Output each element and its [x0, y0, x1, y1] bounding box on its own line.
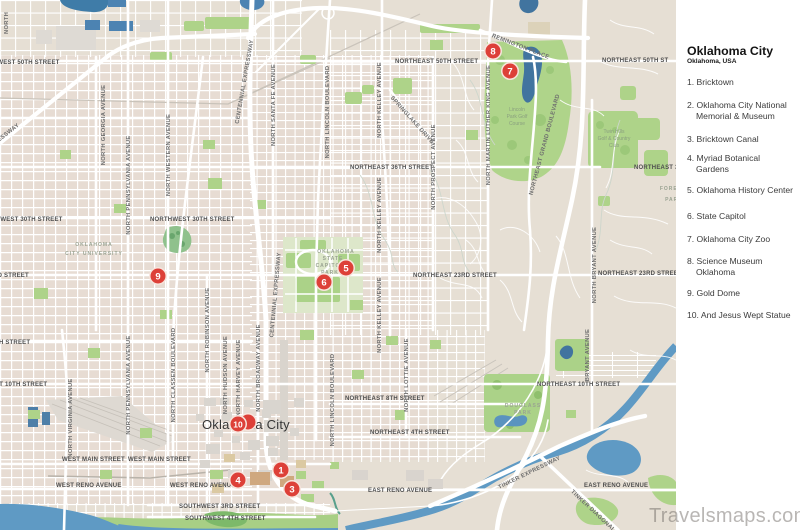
svg-text:PARK: PARK [514, 410, 532, 416]
svg-text:3: 3 [289, 485, 294, 496]
svg-text:NORTHEAST 10TH STREET: NORTHEAST 10TH STREET [537, 382, 620, 388]
svg-text:OKLAHOMA: OKLAHOMA [75, 242, 112, 248]
svg-text:Park Golf: Park Golf [507, 114, 528, 120]
svg-text:FOREST: FOREST [660, 186, 676, 192]
svg-text:OKLAHOMA: OKLAHOMA [317, 249, 354, 255]
svg-text:NORTHEAST 23RD STREET: NORTHEAST 23RD STREET [413, 273, 497, 279]
svg-text:NORTHEAST 36TH STREET: NORTHEAST 36TH STREET [634, 165, 676, 171]
svg-text:SOUTHWEST 4TH STREET: SOUTHWEST 4TH STREET [185, 516, 266, 522]
svg-text:8: 8 [490, 47, 495, 58]
svg-text:12TH STREET: 12TH STREET [0, 340, 30, 346]
svg-text:WEST RENO AVENUE: WEST RENO AVENUE [56, 483, 122, 489]
svg-text:NORTH PENNSYLVANIA AVENUE: NORTH PENNSYLVANIA AVENUE [126, 335, 132, 434]
svg-text:WEST MAIN STREET: WEST MAIN STREET [128, 457, 191, 463]
svg-text:NORTH LINCOLN BOULEVARD: NORTH LINCOLN BOULEVARD [325, 66, 331, 159]
svg-text:NORTH SANTA FE AVENUE: NORTH SANTA FE AVENUE [271, 64, 277, 146]
svg-text:PARK: PARK [665, 197, 676, 203]
svg-text:DOUGLASS: DOUGLASS [505, 403, 541, 409]
svg-text:NORTHEAST 50TH STREET: NORTHEAST 50TH STREET [395, 59, 478, 65]
svg-text:NORTHWEST 30TH STREET: NORTHWEST 30TH STREET [150, 217, 235, 223]
svg-text:Twin Hills: Twin Hills [603, 129, 625, 135]
svg-text:EAST RENO AVENUE: EAST RENO AVENUE [584, 483, 648, 489]
svg-text:NORTH GEORGIA AVENUE: NORTH GEORGIA AVENUE [101, 85, 107, 166]
svg-text:9: 9 [155, 272, 160, 283]
svg-text:NORTH VIRGINIA AVENUE: NORTH VIRGINIA AVENUE [68, 378, 74, 457]
svg-text:SOUTHWEST 3RD STREET: SOUTHWEST 3RD STREET [179, 504, 260, 510]
svg-text:CITY UNIVERSITY: CITY UNIVERSITY [65, 251, 123, 257]
svg-text:NORTHEAST 36TH STREET: NORTHEAST 36TH STREET [350, 165, 433, 171]
svg-text:NORTH CLASSEN BOULEVARD: NORTH CLASSEN BOULEVARD [171, 328, 177, 423]
svg-text:1: 1 [278, 466, 284, 477]
svg-text:NORTH BROADWAY AVENUE: NORTH BROADWAY AVENUE [256, 324, 262, 411]
svg-text:NORTH PENNSYLVANIA AVENUE: NORTH PENNSYLVANIA AVENUE [126, 135, 132, 234]
svg-text:NORTH LOTTIE AVENUE: NORTH LOTTIE AVENUE [404, 338, 410, 412]
svg-text:NORTHEAST 50TH ST: NORTHEAST 50TH ST [602, 58, 669, 64]
svg-text:NORTH WESTERN AVENUE: NORTH WESTERN AVENUE [166, 114, 172, 196]
svg-text:NORTHWEST 30TH STREET: NORTHWEST 30TH STREET [0, 217, 63, 223]
svg-text:5: 5 [343, 264, 349, 275]
svg-text:WEST RENO AVENUE: WEST RENO AVENUE [170, 483, 236, 489]
svg-text:Course: Course [509, 121, 525, 127]
svg-text:10: 10 [233, 420, 243, 430]
svg-text:7: 7 [507, 67, 512, 78]
svg-text:NORTH KELLEY AVENUE: NORTH KELLEY AVENUE [377, 177, 383, 253]
svg-text:NORTH MARTIN LUTHER KING AVENU: NORTH MARTIN LUTHER KING AVENUE [486, 65, 492, 185]
svg-text:NORTHWEST 50TH STREET: NORTHWEST 50TH STREET [0, 60, 60, 66]
svg-text:Golf & Country: Golf & Country [598, 136, 631, 142]
svg-text:NORTH ROBINSON AVENUE: NORTH ROBINSON AVENUE [205, 288, 211, 373]
svg-text:Club: Club [609, 143, 620, 149]
svg-text:Lincoln: Lincoln [509, 107, 525, 113]
svg-text:NORTH PROSPECT AVENUE: NORTH PROSPECT AVENUE [431, 124, 437, 210]
svg-text:BRYANT AVENUE: BRYANT AVENUE [585, 329, 591, 381]
svg-text:NORTH HUDSON AVENUE: NORTH HUDSON AVENUE [223, 336, 229, 414]
svg-text:EAST RENO AVENUE: EAST RENO AVENUE [368, 488, 432, 494]
svg-text:23RD STREET: 23RD STREET [0, 273, 29, 279]
svg-text:NORTH KELLEY AVENUE: NORTH KELLEY AVENUE [377, 277, 383, 353]
svg-text:6: 6 [321, 278, 326, 289]
svg-text:NORTHEAST 4TH STREET: NORTHEAST 4TH STREET [370, 430, 450, 436]
svg-text:4: 4 [235, 476, 241, 487]
svg-text:NORTH: NORTH [4, 12, 10, 34]
svg-text:NORTH KELLEY AVENUE: NORTH KELLEY AVENUE [377, 62, 383, 138]
svg-text:NORTH LINCOLN BOULEVARD: NORTH LINCOLN BOULEVARD [330, 354, 336, 447]
svg-text:NORTH BRYANT AVENUE: NORTH BRYANT AVENUE [592, 227, 598, 303]
svg-text:NORTH HARVEY AVENUE: NORTH HARVEY AVENUE [236, 340, 242, 417]
svg-text:WEST 10TH STREET: WEST 10TH STREET [0, 382, 47, 388]
svg-text:NORTHEAST 8TH STREET: NORTHEAST 8TH STREET [345, 396, 425, 402]
svg-text:NORTHEAST 23RD STREET: NORTHEAST 23RD STREET [598, 271, 676, 277]
